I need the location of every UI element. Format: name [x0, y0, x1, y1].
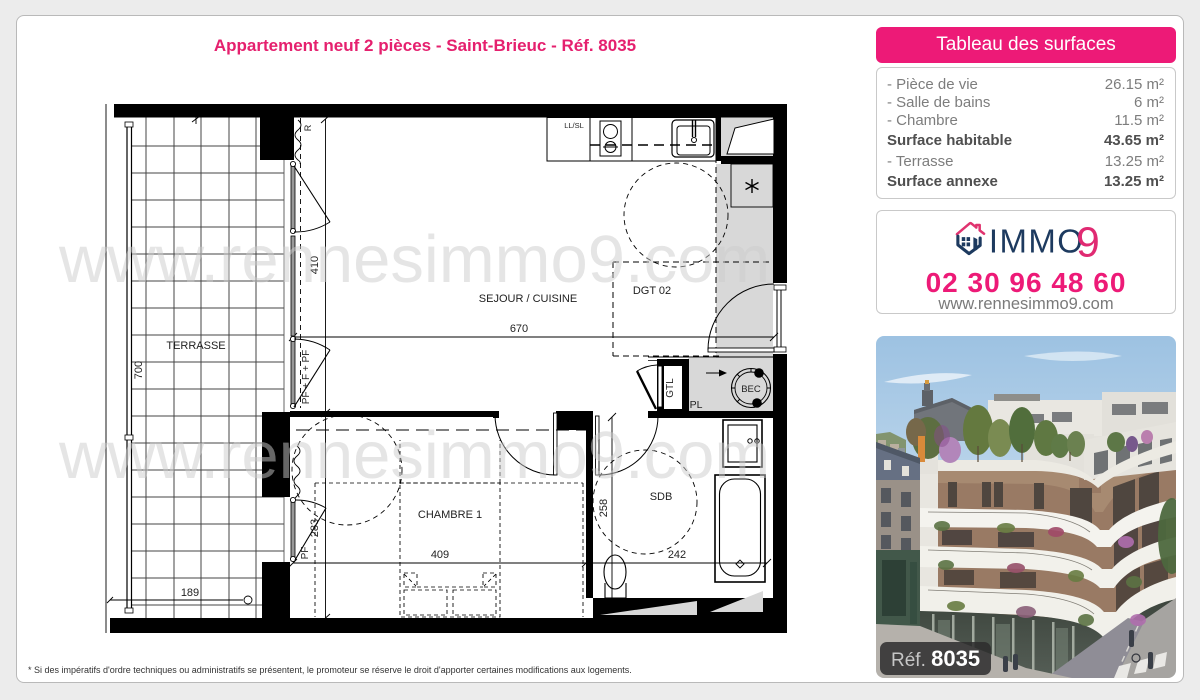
svg-text:IMMO: IMMO: [989, 223, 1084, 260]
svg-text:9: 9: [1076, 219, 1100, 263]
svg-text:PF: PF: [300, 547, 311, 560]
svg-text:CHAMBRE 1: CHAMBRE 1: [418, 509, 482, 521]
svg-text:LL/SL: LL/SL: [564, 121, 584, 130]
svg-text:242: 242: [668, 549, 686, 561]
svg-text:670: 670: [510, 323, 528, 335]
svg-text:258: 258: [598, 499, 610, 517]
svg-text:PL: PL: [690, 399, 703, 411]
svg-text:GTL: GTL: [665, 378, 676, 398]
svg-text:BEC: BEC: [741, 384, 761, 395]
svg-text:189: 189: [181, 587, 199, 599]
svg-text:409: 409: [431, 549, 449, 561]
svg-text:TERRASSE: TERRASSE: [166, 340, 225, 352]
svg-text:R: R: [303, 124, 313, 131]
svg-text:PF + F + PF: PF + F + PF: [301, 350, 312, 404]
svg-text:700: 700: [133, 361, 145, 379]
